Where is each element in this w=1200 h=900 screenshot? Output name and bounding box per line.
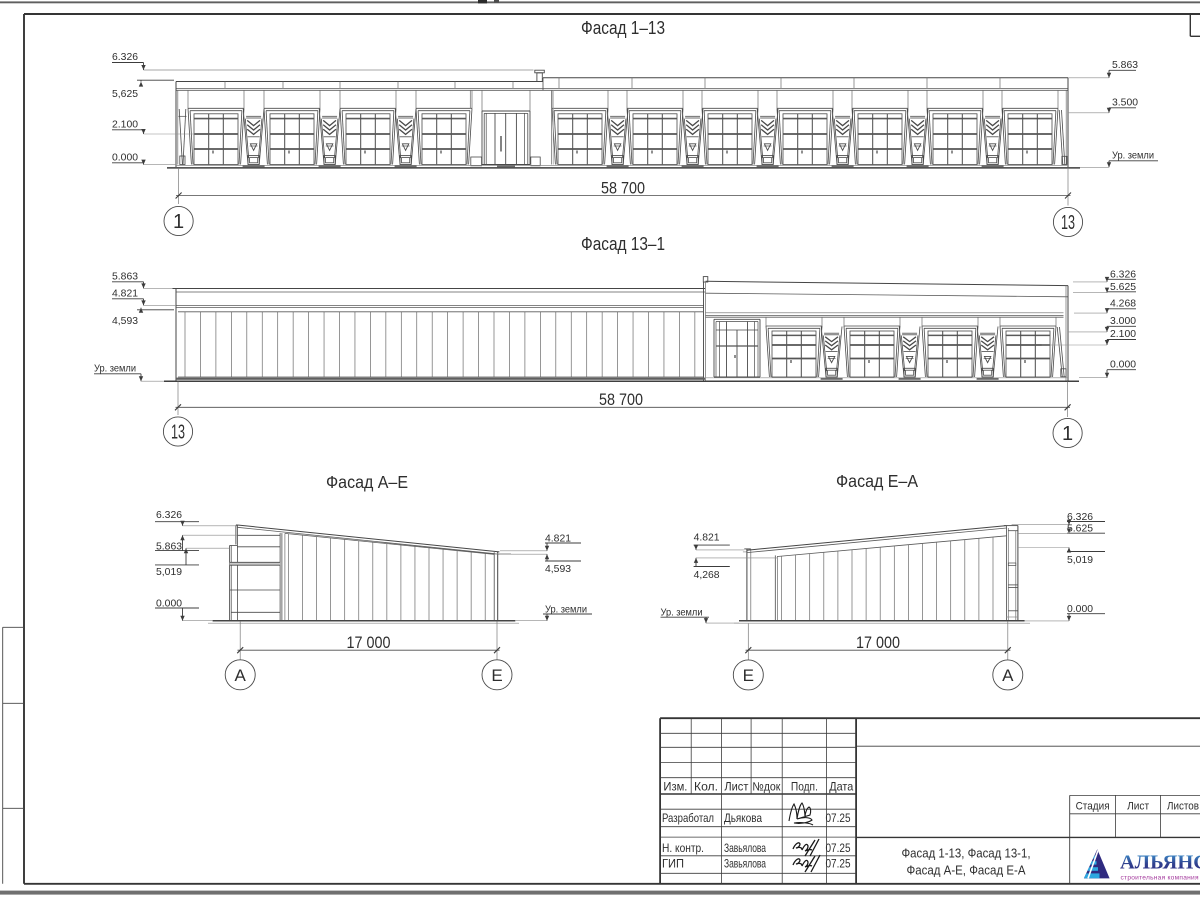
svg-text:0.000: 0.000 bbox=[1110, 358, 1136, 370]
svg-text:07.25: 07.25 bbox=[826, 811, 851, 825]
svg-text:Фасад Е–А: Фасад Е–А bbox=[836, 471, 918, 491]
svg-text:5.863: 5.863 bbox=[1112, 59, 1138, 71]
svg-text:4,268: 4,268 bbox=[694, 569, 720, 581]
svg-text:07.25: 07.25 bbox=[826, 841, 851, 855]
svg-text:А: А bbox=[1002, 666, 1014, 685]
svg-text:07.25: 07.25 bbox=[826, 857, 851, 871]
svg-text:Е: Е bbox=[491, 666, 502, 685]
svg-text:Н. контр.: Н. контр. bbox=[662, 841, 704, 855]
svg-text:5,019: 5,019 bbox=[156, 566, 182, 578]
svg-text:А: А bbox=[235, 666, 247, 685]
svg-text:17 000: 17 000 bbox=[347, 633, 391, 652]
svg-text:17 000: 17 000 bbox=[856, 633, 900, 652]
svg-text:4.821: 4.821 bbox=[112, 288, 138, 300]
svg-text:строительная компания: строительная компания bbox=[1121, 874, 1199, 881]
svg-text:Фасад 13–1: Фасад 13–1 bbox=[581, 233, 665, 254]
svg-text:13: 13 bbox=[171, 422, 185, 444]
svg-text:Фасад А-Е, Фасад Е-А: Фасад А-Е, Фасад Е-А bbox=[907, 862, 1026, 877]
svg-text:Стадия: Стадия bbox=[1076, 801, 1110, 813]
svg-text:5.863: 5.863 bbox=[112, 271, 138, 283]
svg-text:1: 1 bbox=[1062, 423, 1073, 445]
svg-text:Кол.: Кол. bbox=[694, 780, 718, 794]
svg-text:Дьякова: Дьякова bbox=[724, 811, 762, 825]
svg-text:Листов: Листов bbox=[1167, 801, 1199, 813]
svg-text:13: 13 bbox=[1061, 212, 1075, 234]
svg-text:5.625: 5.625 bbox=[1110, 281, 1136, 293]
svg-text:2.100: 2.100 bbox=[1110, 328, 1136, 340]
svg-text:0.000: 0.000 bbox=[1067, 603, 1093, 615]
svg-text:Завьялова: Завьялова bbox=[724, 841, 766, 855]
svg-text:0.000: 0.000 bbox=[112, 152, 138, 164]
svg-text:5,625: 5,625 bbox=[112, 88, 138, 100]
svg-text:58 700: 58 700 bbox=[601, 178, 645, 197]
svg-text:Фасад 1-13, Фасад 13-1,: Фасад 1-13, Фасад 13-1, bbox=[902, 846, 1031, 861]
svg-text:Изм.: Изм. bbox=[663, 780, 687, 794]
svg-text:Ур. земли: Ур. земли bbox=[94, 363, 136, 375]
svg-text:5,019: 5,019 bbox=[1067, 554, 1093, 566]
svg-text:4,593: 4,593 bbox=[112, 315, 138, 327]
svg-text:4.268: 4.268 bbox=[1110, 298, 1136, 310]
svg-text:Ур. земли: Ур. земли bbox=[1112, 150, 1154, 162]
svg-text:3.500: 3.500 bbox=[1112, 97, 1138, 109]
svg-text:Лист: Лист bbox=[724, 780, 748, 794]
svg-text:3.000: 3.000 bbox=[1110, 315, 1136, 327]
svg-text:6.326: 6.326 bbox=[1110, 268, 1136, 280]
svg-text:4,593: 4,593 bbox=[545, 563, 571, 575]
svg-text:Дата: Дата bbox=[829, 780, 853, 794]
svg-text:ГИП: ГИП bbox=[662, 857, 684, 871]
svg-text:4.821: 4.821 bbox=[694, 532, 720, 544]
svg-text:№док: №док bbox=[752, 780, 781, 794]
svg-text:6.326: 6.326 bbox=[112, 51, 138, 63]
svg-text:58 700: 58 700 bbox=[599, 390, 643, 409]
svg-text:Подп.: Подп. bbox=[791, 780, 818, 794]
svg-text:2.100: 2.100 bbox=[112, 119, 138, 131]
svg-text:АЛЬЯНС: АЛЬЯНС bbox=[1120, 852, 1200, 874]
svg-text:1: 1 bbox=[173, 211, 184, 233]
svg-text:6.326: 6.326 bbox=[156, 509, 182, 521]
svg-text:Фасад 1–13: Фасад 1–13 bbox=[581, 17, 665, 38]
svg-text:Лист: Лист bbox=[1127, 801, 1149, 813]
svg-text:Фасад А–Е: Фасад А–Е bbox=[326, 472, 408, 492]
svg-text:Завьялова: Завьялова bbox=[724, 857, 766, 871]
svg-text:Разработал: Разработал bbox=[662, 811, 714, 825]
svg-text:Е: Е bbox=[743, 666, 754, 685]
